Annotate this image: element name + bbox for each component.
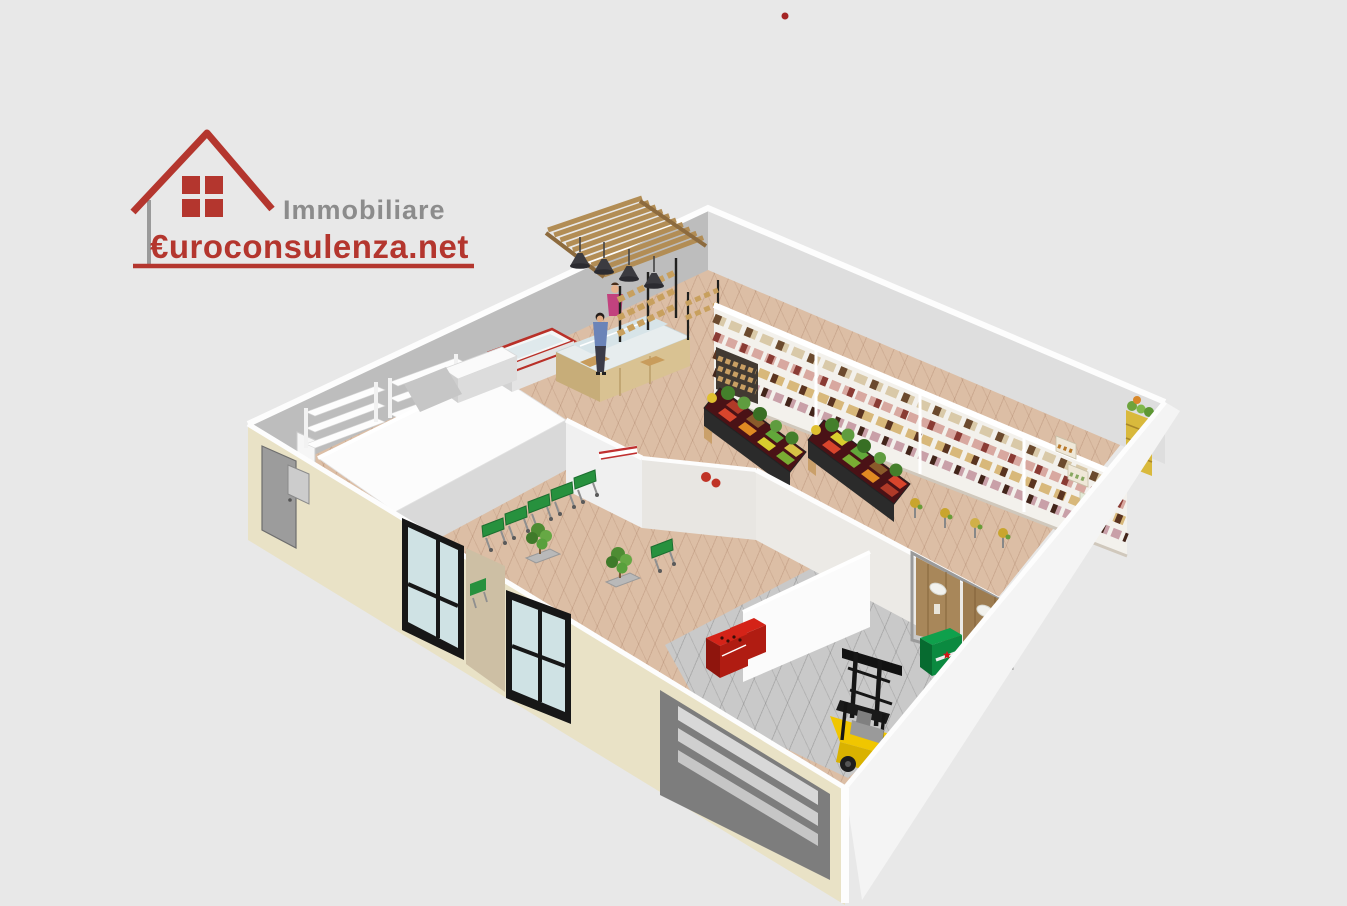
floorplan-scene: Immobiliare €uroconsulenza.net: [0, 0, 1347, 906]
marker-dot: [782, 13, 789, 20]
shopping-cart: [651, 539, 676, 573]
house-window-icon: [182, 176, 223, 217]
entrance-door-2: [506, 590, 571, 724]
shopping-cart: [551, 482, 576, 516]
shopping-cart: [482, 518, 507, 552]
shopping-cart: [505, 506, 530, 540]
side-door: [262, 446, 296, 548]
shopping-cart: [528, 494, 553, 528]
floorplan-render: Immobiliare €uroconsulenza.net: [0, 0, 1347, 906]
potted-plant-2: [606, 547, 640, 587]
watermark-line2: €uroconsulenza.net: [150, 228, 469, 265]
watermark-logo: Immobiliare €uroconsulenza.net: [133, 133, 474, 266]
potted-plant: [526, 523, 560, 563]
bread-rack-2: [686, 280, 718, 340]
watermark-line1: Immobiliare: [283, 195, 446, 225]
